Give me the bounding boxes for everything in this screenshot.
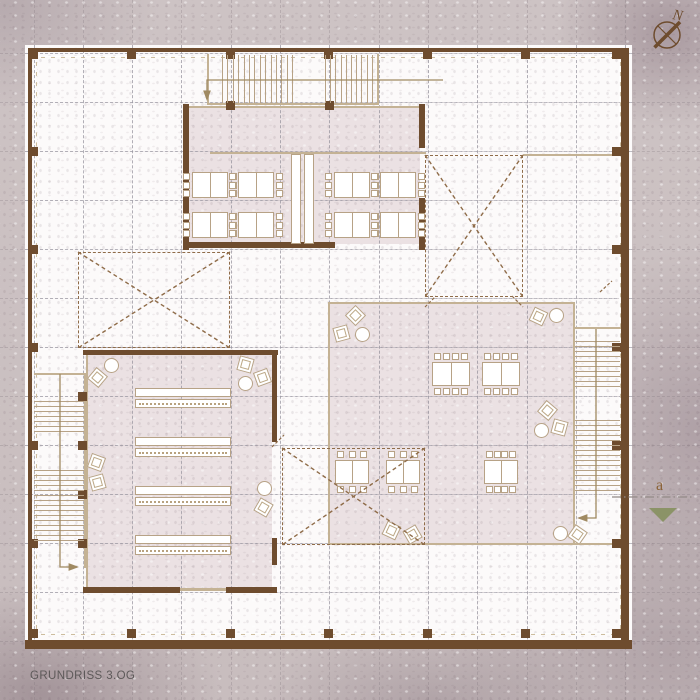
void-x-diagonal — [282, 448, 425, 545]
section-marker-triangle-icon — [649, 508, 677, 522]
stair-walk-line — [207, 80, 443, 99]
north-arrow-icon: N — [654, 7, 685, 48]
section-marker-label: a — [656, 477, 663, 495]
void-x-diagonal — [78, 252, 230, 348]
door-tick — [425, 296, 436, 307]
void-x-diagonal — [425, 155, 523, 297]
door-tick — [512, 296, 523, 307]
void-x-diagonal — [78, 252, 230, 348]
floor-plan-canvas: N GRUNDRISS 3.OG a — [0, 0, 700, 700]
door-tick — [600, 281, 612, 292]
plan-title: GRUNDRISS 3.OG — [30, 670, 135, 682]
door-tick — [272, 435, 284, 447]
vector-overlay: N — [0, 0, 700, 700]
stair-walk-line — [60, 374, 77, 567]
stair-walk-line — [579, 329, 596, 518]
north-label: N — [670, 7, 685, 25]
